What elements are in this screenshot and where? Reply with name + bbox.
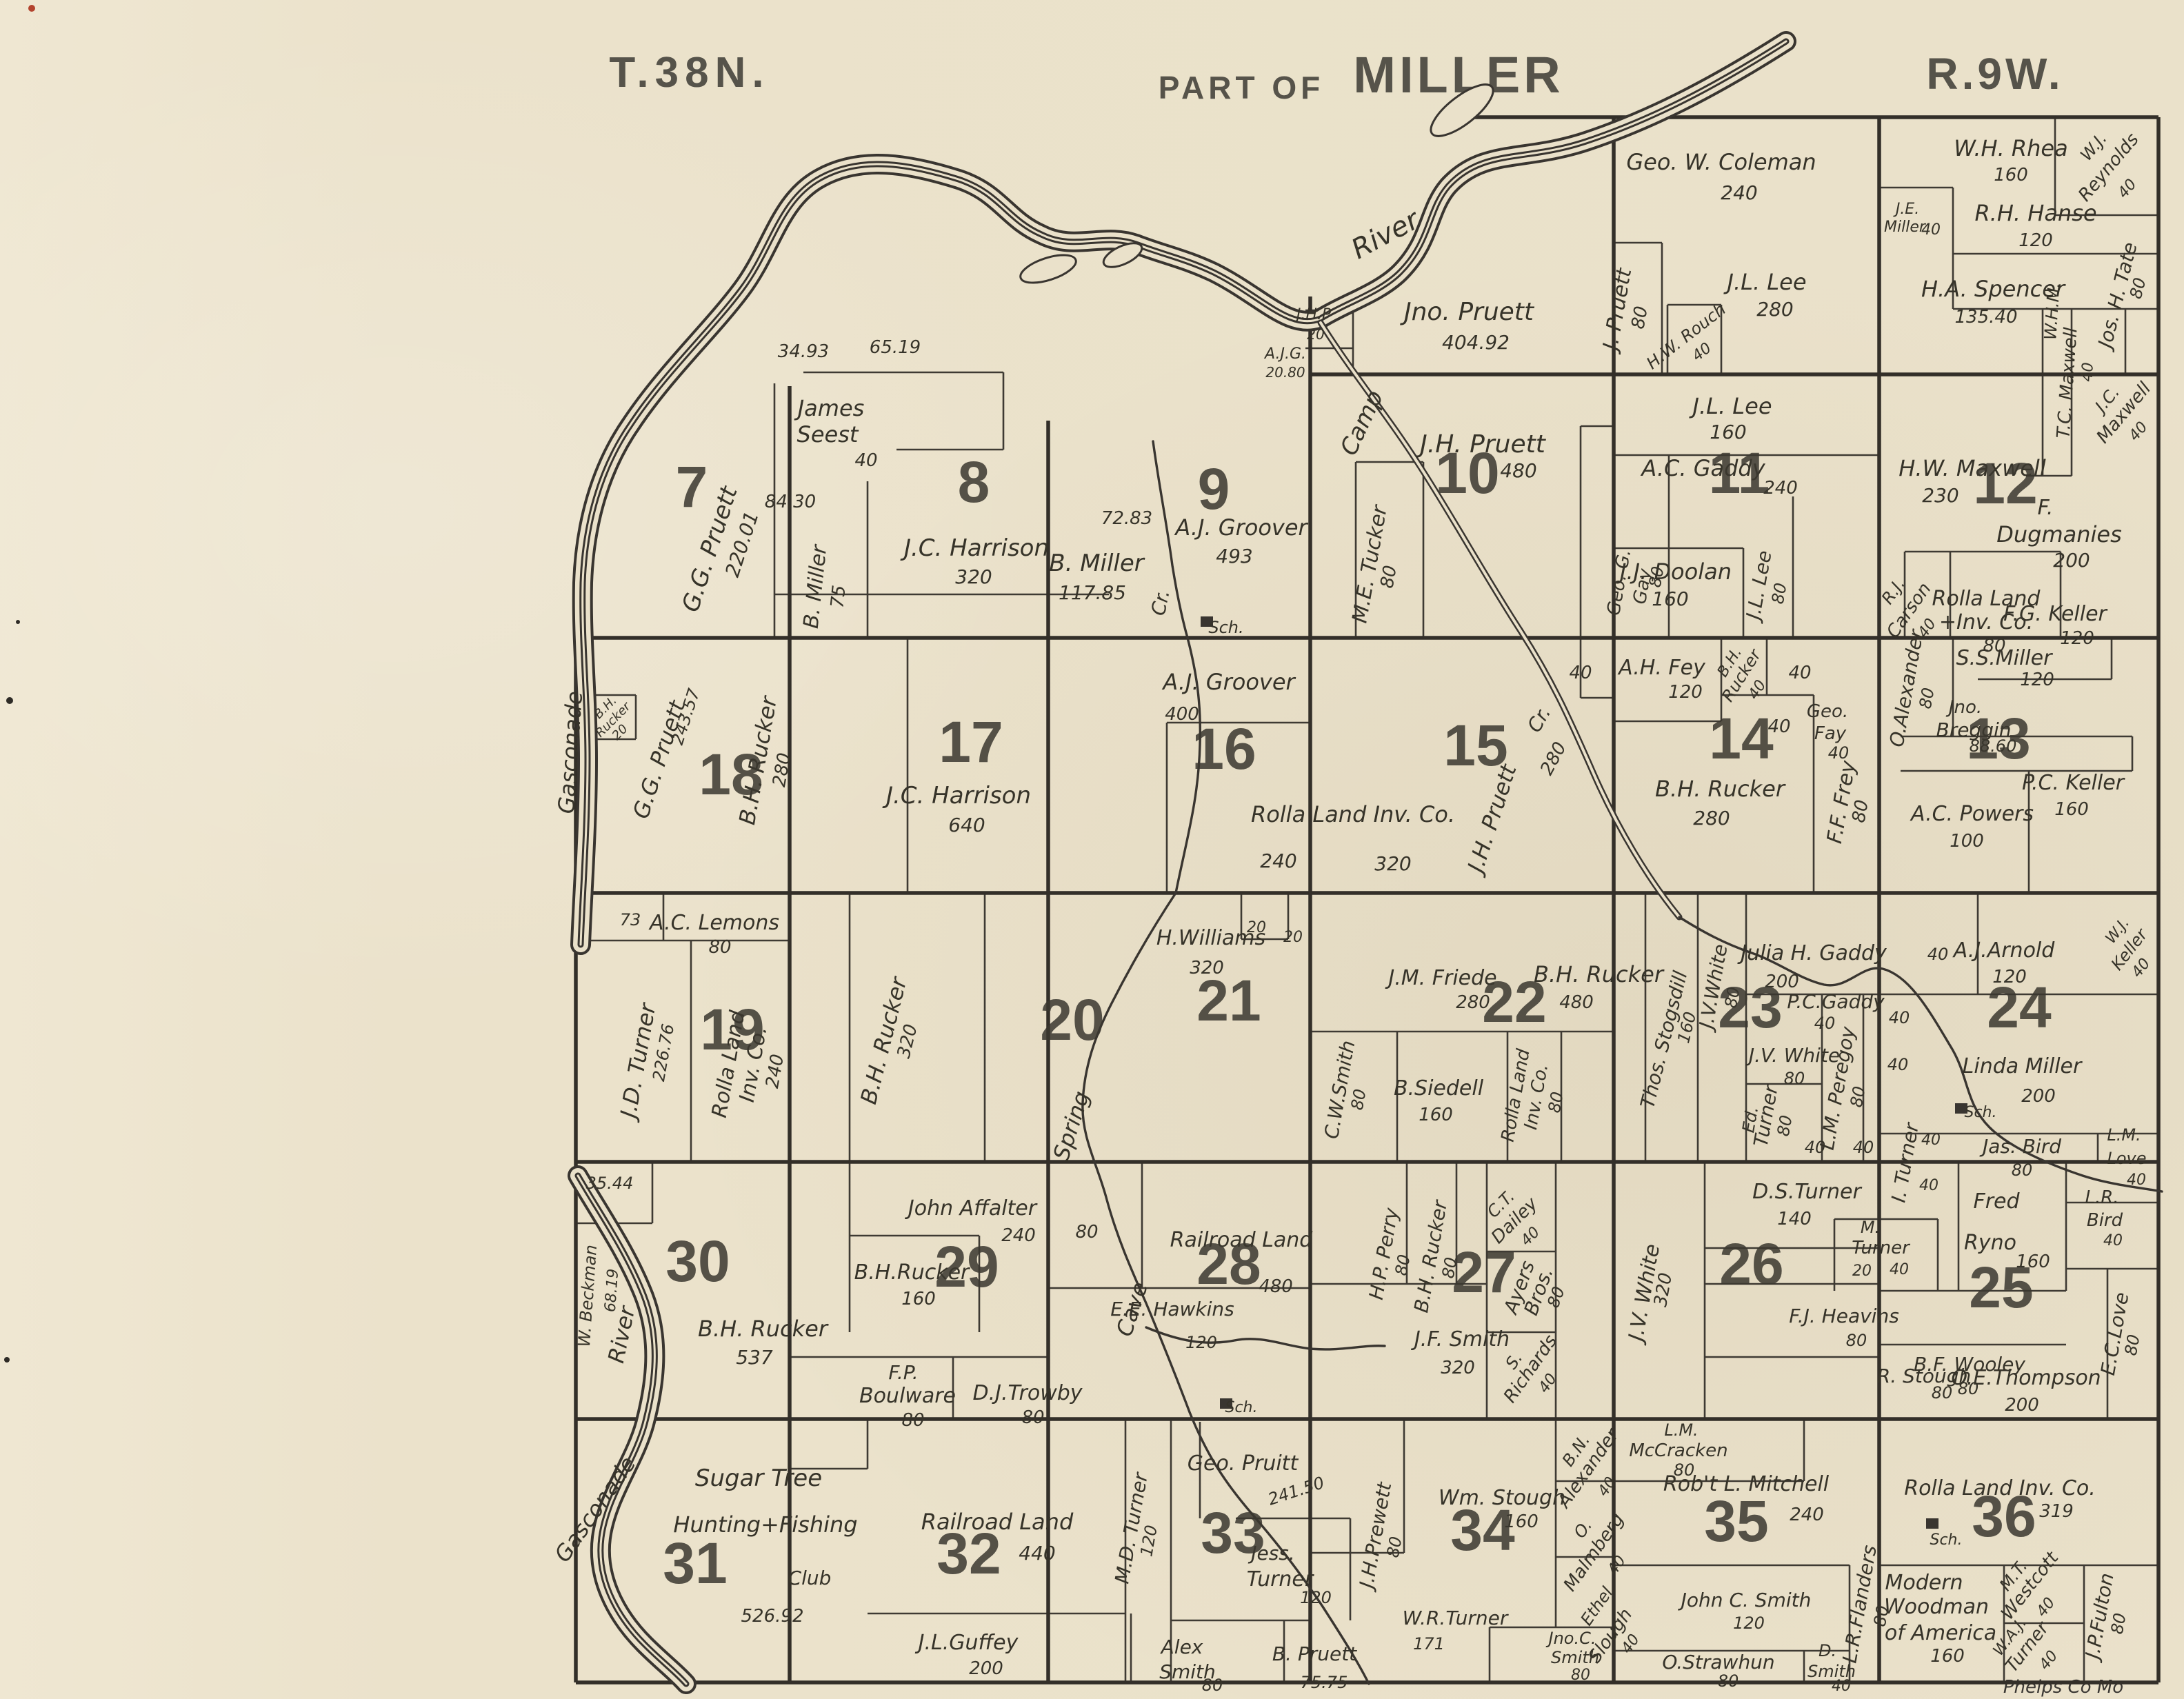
parcel-label: 200 <box>969 1658 1003 1679</box>
parcel-label: 320 <box>1441 1358 1475 1378</box>
parcel-label: O.E.Thompson <box>1951 1366 2101 1390</box>
section-number: 31 <box>663 1531 727 1596</box>
parcel-label: J.L. Lee <box>1689 393 1772 419</box>
parcel-label: A.C. Powers <box>1910 802 2034 826</box>
parcel-label: 493 <box>1216 545 1252 567</box>
parcel-label: 240 <box>1260 849 1296 872</box>
parcel-label: 80 <box>1645 565 1668 589</box>
parcel-label: 135.40 <box>1955 307 2018 328</box>
parcel-label: 320 <box>1374 852 1411 875</box>
section-number: 15 <box>1443 713 1507 778</box>
parcel-label: James <box>794 395 865 421</box>
parcel-label: 160 <box>2054 799 2089 820</box>
parcel-label: Jno.C. <box>1546 1629 1596 1648</box>
section-number: 13 <box>1966 706 2030 771</box>
parcel-label: 40 <box>2078 362 2097 383</box>
parcel-label: 40 <box>854 450 877 471</box>
section-number: 33 <box>1201 1500 1265 1565</box>
parcel-label: 80 <box>708 937 731 958</box>
parcel-label: 120 <box>2018 230 2053 251</box>
parcel-label: L.R. <box>2085 1187 2118 1208</box>
section-number: 22 <box>1482 969 1546 1034</box>
parcel-label: 80 <box>1571 1667 1590 1684</box>
parcel-label: Alex <box>1160 1636 1203 1658</box>
parcel-label: Bird <box>2087 1210 2123 1231</box>
parcel-label: Spring <box>1048 1088 1095 1164</box>
parcel-label: 526.92 <box>741 1606 804 1627</box>
section-number: 24 <box>1987 975 2052 1040</box>
section-number: 28 <box>1196 1231 1261 1296</box>
section-number: 21 <box>1196 968 1261 1033</box>
parcel-label: P.C.Gaddy <box>1787 990 1885 1013</box>
parcel-label: 80 <box>2121 1333 2144 1357</box>
river-island <box>1017 250 1079 288</box>
parcel-label: 160 <box>1419 1105 1453 1125</box>
parcel-label: of America <box>1885 1621 1996 1645</box>
section-number: 17 <box>939 710 1003 774</box>
parcel-label: 440 <box>1019 1542 1055 1565</box>
parcel-label: 80 <box>1846 1331 1867 1350</box>
parcel-label: 75.75 <box>1301 1673 1348 1692</box>
parcel-label: 120 <box>1668 682 1703 703</box>
parcel-label: 40 <box>2036 1647 2061 1673</box>
parcel-label: 40 <box>1890 1261 1909 1278</box>
parcel-label: O.Strawhun <box>1662 1651 1774 1673</box>
parcel-label: 68.19 <box>602 1268 622 1313</box>
parcel-label: 40 <box>1887 1055 1909 1074</box>
parcel-label: 240 <box>1790 1505 1824 1525</box>
parcel-label: 20 <box>1247 919 1266 936</box>
parcel-label: Julia H. Gaddy <box>1737 941 1887 965</box>
parcel-label: 80 <box>2012 1160 2033 1180</box>
parcel-label: 537 <box>736 1346 773 1369</box>
parcel-label: W.R.Turner <box>1403 1607 1509 1629</box>
parcel-label: 320 <box>955 565 992 588</box>
parcel-label: 80 <box>1021 1407 1044 1428</box>
parcel-label: B.H. Rucker <box>1534 961 1665 987</box>
parcel-label: 20 <box>1307 326 1324 343</box>
parcel-label: 319 <box>2039 1501 2074 1522</box>
parcel-label: Woodman <box>1884 1595 1989 1619</box>
parcel-label: Jas. Bird <box>1979 1135 2061 1158</box>
parcel-label: 80 <box>1784 1069 1805 1088</box>
parcel-label: Cr. <box>1523 703 1555 736</box>
section-number: 34 <box>1450 1498 1515 1562</box>
parcel-label: F.J. Heavins <box>1789 1305 1899 1327</box>
parcel-label: 80 <box>901 1410 924 1431</box>
parcel-label: 280 <box>1756 298 1793 321</box>
parcel-label: 84.30 <box>765 492 816 512</box>
parcel-label: 280 <box>1693 807 1730 830</box>
parcel-label: Miller <box>1884 219 1927 236</box>
parcel-label: 75 <box>827 584 850 609</box>
parcel-label: 80 <box>1774 1114 1796 1138</box>
scan-speck <box>6 697 13 704</box>
parcel-label: 404.92 <box>1442 331 1510 354</box>
parcel-label: P.C. Keller <box>2022 771 2125 795</box>
parcel-label: F.P. <box>888 1361 918 1384</box>
section-number: 18 <box>699 742 763 807</box>
parcel-label: 120 <box>1185 1333 1217 1352</box>
parcel-label: J.L.Guffey <box>915 1631 1019 1655</box>
parcel-label: J.H. Pruett <box>1461 761 1522 879</box>
parcel-label: 200 <box>2021 1086 2056 1107</box>
section-number: 27 <box>1452 1240 1516 1305</box>
scan-speck-red <box>28 5 35 12</box>
school-icon <box>1926 1518 1938 1529</box>
parcel-label: Sch. <box>1208 618 1243 637</box>
parcel-label: 65.19 <box>870 337 921 358</box>
parcel-label: 20.80 <box>1265 364 1305 381</box>
parcel-label: 160 <box>1994 165 2028 185</box>
section-number: 7 <box>676 454 708 519</box>
parcel-label: Sch. <box>1225 1399 1258 1416</box>
parcel-label: 40 <box>1921 1132 1941 1149</box>
parcel-label: 20 <box>1852 1263 1872 1280</box>
parcel-label: 120 <box>1300 1588 1332 1607</box>
parcel-label: 160 <box>1930 1646 1965 1667</box>
parcel-label: Sch. <box>1965 1104 1997 1121</box>
parcel-label: Fay <box>1814 723 1847 744</box>
parcel-label: 140 <box>1777 1209 1812 1229</box>
parcel-label: 40 <box>1853 1138 1874 1157</box>
parcel-label: 40 <box>1919 1177 1938 1194</box>
parcel-label: Dugmanies <box>1996 521 2122 547</box>
parcel-label: 200 <box>2053 549 2090 572</box>
parcel-label: 40 <box>1689 339 1714 365</box>
parcel-label: 34.93 <box>778 341 829 362</box>
section-number: 25 <box>1969 1255 2033 1320</box>
section-number: 19 <box>700 997 764 1062</box>
parcel-label: A.J. Groover <box>1174 514 1308 541</box>
parcel-label: 73 <box>620 910 641 929</box>
parcel-label: Seest <box>797 421 859 448</box>
parcel-label: 241.50 <box>1265 1473 1327 1509</box>
parcel-label: 80 <box>1627 305 1652 331</box>
parcel-label: Malmberg <box>1560 1509 1628 1595</box>
parcel-label: B. Miller <box>799 543 832 630</box>
parcel-label: Ryno <box>1964 1231 2016 1255</box>
parcel-label: J.E. <box>1893 201 1919 218</box>
parcel-label: Love <box>2107 1149 2146 1168</box>
parcel-label: S.S.Miller <box>1956 646 2054 670</box>
parcel-label: D. <box>1819 1641 1836 1660</box>
parcel-label: John Affalter <box>905 1196 1038 1220</box>
plat-map-sheet: T.38N. PART OF MILLER R.9W. Phelps Co Mo… <box>0 0 2184 1699</box>
parcel-label: 80 <box>2126 276 2150 301</box>
section-number: 30 <box>665 1229 730 1294</box>
parcel-label: 120 <box>2060 628 2094 649</box>
parcel-label: 80 <box>1348 1087 1370 1112</box>
parcel-label: 160 <box>1652 587 1688 610</box>
parcel-label: T.C. Maxwell <box>2053 326 2081 439</box>
parcel-label: 40 <box>1788 663 1811 683</box>
parcel-label: B. Miller <box>1049 550 1145 577</box>
parcel-label: 480 <box>1559 992 1594 1013</box>
section-number: 36 <box>1972 1484 2036 1549</box>
parcel-label: 80 <box>1392 1253 1414 1277</box>
creek-path <box>1146 1327 1385 1349</box>
parcel-label: 480 <box>1500 459 1536 482</box>
parcel-label: 80 <box>1075 1222 1098 1243</box>
parcel-label: 160 <box>901 1289 936 1309</box>
parcel-label: L.M. <box>2107 1125 2141 1145</box>
parcel-label: D.S.Turner <box>1752 1180 1862 1204</box>
parcel-label: A.J.Arnold <box>1952 938 2056 963</box>
parcel-label: 80 <box>1932 1383 1953 1403</box>
parcel-label: John C. Smith <box>1678 1589 1812 1611</box>
parcel-label: 80 <box>1718 1671 1739 1691</box>
parcel-label: 40 <box>2127 1172 2146 1189</box>
parcel-label: B.H. Rucker <box>1410 1198 1452 1314</box>
parcel-label: 80 <box>1847 1085 1870 1109</box>
section-number: 35 <box>1704 1489 1768 1554</box>
parcel-label: A.H. Fey <box>1617 656 1706 680</box>
parcel-label: J.C. Harrison <box>900 534 1049 562</box>
parcel-label: E.E. Hawkins <box>1110 1298 1234 1320</box>
parcel-label: 40 <box>1927 945 1949 964</box>
parcel-label: J.V. White <box>1745 1044 1840 1067</box>
parcel-label: W. Beckman <box>574 1244 601 1347</box>
parcel-label: 40 <box>2125 419 2151 445</box>
section-number: 32 <box>936 1521 1001 1586</box>
parcel-label: 40 <box>2033 1594 2058 1620</box>
parcel-label: J.L. Lee <box>1723 269 1807 295</box>
parcel-label: 200 <box>2005 1395 2039 1416</box>
parcel-label: 40 <box>2103 1232 2123 1249</box>
parcel-label: Sugar Tree <box>695 1465 822 1492</box>
parcel-label: 80 <box>1202 1676 1223 1695</box>
map-canvas: RiverCampCr.Cr.GasconadeGasconadeRiverSp… <box>0 0 2184 1699</box>
section-number: 8 <box>958 450 990 514</box>
parcel-label: 240 <box>1001 1225 1036 1246</box>
section-number: 20 <box>1040 987 1104 1052</box>
scan-speck <box>16 620 20 624</box>
parcel-label: Modern <box>1885 1571 1963 1595</box>
parcel-label: H.W. Rouch <box>1643 299 1730 373</box>
parcel-label: J.M. Friede <box>1385 966 1496 990</box>
parcel-label: 240 <box>1721 181 1757 204</box>
river-island <box>1423 76 1500 144</box>
parcel-label: 640 <box>948 814 985 836</box>
parcel-label: Smith <box>1551 1648 1599 1667</box>
parcel-label: W.H. Rhea <box>1954 135 2067 161</box>
parcel-label: F. <box>2038 496 2054 520</box>
parcel-label: 80 <box>1545 1090 1567 1114</box>
parcel-label: 230 <box>1922 484 1958 507</box>
parcel-label: J.C. Harrison <box>882 782 1031 810</box>
parcel-label: D.J.Trowby <box>972 1381 1083 1405</box>
parcel-label: 40 <box>1814 1014 1836 1033</box>
section-number: 23 <box>1718 975 1782 1040</box>
parcel-label: Geo. Pruitt <box>1188 1451 1299 1476</box>
parcel-label: A.C. Lemons <box>648 911 779 935</box>
parcel-label: J.H.P <box>1294 306 1332 323</box>
scan-speck <box>4 1357 10 1363</box>
parcel-label: M.E. Tucker <box>1348 503 1392 625</box>
parcel-label: 480 <box>1259 1276 1293 1297</box>
parcel-label: J.F. Smith <box>1411 1327 1510 1351</box>
section-number: 10 <box>1435 441 1499 505</box>
parcel-label: 20 <box>1283 929 1303 946</box>
section-number: 12 <box>1973 451 2037 516</box>
parcel-label: Camp <box>1335 386 1389 460</box>
parcel-label: Geo. <box>1807 701 1848 722</box>
parcel-label: 80 <box>1916 686 1938 710</box>
section-number: 14 <box>1709 706 1774 771</box>
parcel-label: F.G. Keller <box>2003 602 2107 626</box>
section-number: 16 <box>1192 716 1256 781</box>
parcel-label: 80 <box>2107 1611 2130 1636</box>
parcel-label: 40 <box>2114 176 2140 202</box>
parcel-label: 120 <box>1733 1613 1765 1633</box>
parcel-label: Geo. W. Coleman <box>1626 149 1816 175</box>
parcel-label: A.J.G. <box>1263 345 1306 363</box>
parcel-label: 40 <box>1832 1678 1851 1695</box>
parcel-label: L.M. <box>1664 1420 1698 1440</box>
parcel-label: Rolla Land Inv. Co. <box>1251 801 1455 827</box>
parcel-label: 40 <box>1569 663 1592 683</box>
parcel-label: R.H. Hanse <box>1974 200 2096 226</box>
parcel-label: Fred <box>1973 1189 2020 1214</box>
parcel-label: 100 <box>1950 831 1984 852</box>
parcel-label: 80 <box>1768 581 1791 605</box>
section-number: 11 <box>1709 441 1770 505</box>
parcel-label: 40 <box>1889 1008 1910 1027</box>
parcel-label: 171 <box>1413 1634 1445 1653</box>
parcel-label: B.H. Rucker <box>698 1316 829 1342</box>
parcel-label: 280 <box>1536 738 1571 778</box>
parcel-label: Sch. <box>1930 1531 1963 1549</box>
parcel-label: 117.85 <box>1059 581 1126 604</box>
parcel-label: L.R.Flanders <box>1838 1543 1881 1665</box>
parcel-label: B.Siedell <box>1394 1076 1484 1100</box>
parcel-label: 40 <box>1594 1474 1620 1500</box>
parcel-label: McCracken <box>1629 1440 1727 1461</box>
section-number: 9 <box>1198 456 1230 521</box>
parcel-label: Jno. Pruett <box>1400 298 1535 326</box>
parcel-label: B.H. Rucker <box>1655 776 1786 802</box>
parcel-label: M. <box>1861 1218 1880 1237</box>
parcel-label: H.A. Spencer <box>1921 276 2066 302</box>
parcel-label: 35.44 <box>586 1174 634 1193</box>
parcel-label: 40 <box>1921 221 1941 239</box>
parcel-label: B. Pruett <box>1272 1642 1357 1665</box>
parcel-label: Cr. <box>1147 587 1174 617</box>
section-number: 26 <box>1719 1231 1783 1296</box>
parcel-label: 80 <box>1376 564 1401 590</box>
parcel-label: 80 <box>1383 1535 1406 1559</box>
parcel-label: A.J. Groover <box>1161 669 1296 695</box>
parcel-label: Boulware <box>859 1384 956 1408</box>
parcel-label: 72.83 <box>1101 508 1152 529</box>
parcel-label: Turner <box>1852 1238 1911 1258</box>
section-number: 29 <box>934 1234 999 1299</box>
parcel-label: Club <box>788 1567 832 1589</box>
parcel-label: 80 <box>1848 798 1872 825</box>
parcel-label: Linda Miller <box>1963 1054 2083 1078</box>
parcel-label: 120 <box>2020 670 2054 690</box>
